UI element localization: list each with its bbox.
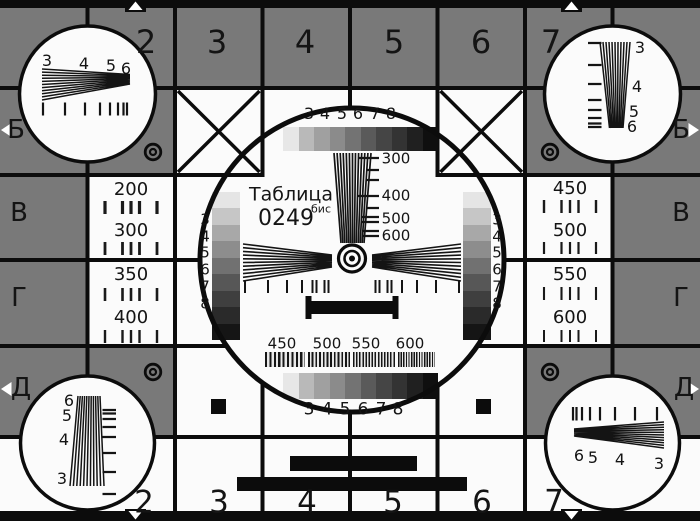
- gray-step-label: 5: [340, 402, 351, 419]
- grayscale-step: [212, 324, 240, 340]
- grayscale-step: [212, 208, 240, 224]
- grayscale-step: [423, 127, 439, 151]
- freq-label: 400: [382, 189, 411, 204]
- center-circle-outline-layer: [0, 0, 700, 521]
- wedge-number: 3: [635, 40, 645, 56]
- x-cell-right: [438, 88, 526, 175]
- grayscale-step: [330, 373, 346, 399]
- grayscale-step: [463, 324, 491, 340]
- freq-bar-label: 550: [352, 337, 381, 352]
- gray-step-label: 7: [370, 106, 380, 122]
- wedge-number: 4: [59, 432, 69, 448]
- sync-markers: [1, 0, 699, 521]
- black-square-left: [211, 399, 226, 414]
- ladder-label-right: 3: [492, 213, 502, 228]
- bottom-bar-long: [237, 477, 467, 491]
- ladder-label-left: 7: [200, 280, 210, 295]
- freq-tick-scale: [358, 158, 379, 236]
- grayscale-step: [345, 127, 361, 151]
- grayscale-step: [299, 373, 315, 399]
- bottom-sync-strip: [0, 511, 700, 521]
- bottom-bar-short: [290, 456, 417, 471]
- grayscale-step: [463, 307, 491, 323]
- side-cell-label: 450: [553, 180, 587, 198]
- wedge-number: 6: [121, 61, 131, 77]
- col-label-top: 2: [136, 26, 156, 58]
- triangle-up-icon: [565, 2, 579, 11]
- gray-step-label: 5: [337, 106, 347, 122]
- col-label-top: 7: [541, 26, 561, 58]
- grayscale-ladder-right: [463, 192, 491, 340]
- resolution-wedge-top-right: [600, 42, 630, 128]
- grayscale-step: [423, 373, 439, 399]
- col-label-top: 5: [384, 26, 404, 58]
- row-label-right: В: [672, 200, 690, 226]
- grayscale-step: [212, 225, 240, 241]
- ladder-label-left: 8: [200, 297, 210, 312]
- col-label-top: 3: [207, 26, 227, 58]
- side-cell-label: 500: [553, 222, 587, 240]
- freq-bar-label: 450: [268, 337, 297, 352]
- triangle-down-icon: [565, 511, 579, 520]
- grayscale-step: [463, 274, 491, 290]
- ladder-label-left: 5: [200, 246, 210, 261]
- grayscale-step: [212, 241, 240, 257]
- grayscale-bar-top: [283, 127, 438, 151]
- ladder-label-right: 4: [492, 230, 502, 245]
- ladder-label-right: 6: [492, 263, 502, 278]
- wedge-number: 4: [632, 79, 642, 95]
- side-cell-label: 200: [114, 181, 148, 199]
- row-label-right: Г: [673, 285, 689, 311]
- col-label-top: 4: [295, 26, 315, 58]
- gray-step-label: 7: [376, 402, 387, 419]
- tick-scale-top-left: [43, 103, 127, 116]
- row-label-right: Б: [672, 117, 690, 143]
- grid-lines: [0, 8, 700, 511]
- freq-burst-450: [265, 352, 305, 367]
- resolution-wedge-bottom-right: [574, 422, 664, 448]
- triangle-right-icon: [689, 123, 700, 137]
- gray-step-label: 4: [322, 402, 333, 419]
- grayscale-step: [314, 373, 330, 399]
- row-label-left: Г: [11, 285, 27, 311]
- triangle-up-icon: [129, 2, 143, 11]
- corner-circle-top-right: [545, 26, 681, 162]
- grayscale-step: [392, 127, 408, 151]
- gray-step-label: 3: [304, 402, 315, 419]
- target-icon: [145, 364, 161, 380]
- top-sync-strip: [0, 0, 700, 8]
- wedge-number: 3: [57, 471, 67, 487]
- grayscale-step: [283, 373, 299, 399]
- ladder-label-left: 4: [200, 230, 210, 245]
- side-cell-label: 300: [114, 222, 148, 240]
- ladder-label-right: 8: [492, 297, 502, 312]
- corner-circle-bottom-right: [546, 376, 680, 510]
- freq-label: 500: [382, 212, 411, 227]
- diagonal-cross-icon: [441, 91, 523, 172]
- freq-bar-label: 600: [396, 337, 425, 352]
- freq-bar-label: 500: [313, 337, 342, 352]
- col-label-bottom: 2: [134, 488, 154, 519]
- col-label-bottom: 6: [472, 488, 492, 519]
- col-label-top: 6: [471, 26, 491, 58]
- diagonal-cross-icon: [178, 91, 260, 172]
- center-circle-outline: [200, 108, 504, 412]
- gray-step-label: 8: [393, 402, 404, 419]
- grayscale-step: [463, 192, 491, 208]
- ladder-label-right: 7: [492, 280, 502, 295]
- grayscale-step: [314, 127, 330, 151]
- wedge-number: 6: [574, 448, 584, 464]
- gray-step-label: 8: [386, 106, 396, 122]
- grayscale-step: [361, 373, 377, 399]
- grayscale-step: [212, 307, 240, 323]
- x-cell-left: [175, 88, 263, 175]
- side-cell-label: 600: [553, 309, 587, 327]
- row-label-left: В: [10, 200, 28, 226]
- ladder-label-right: 5: [492, 246, 502, 261]
- wedge-number: 4: [79, 56, 89, 72]
- grayscale-step: [212, 258, 240, 274]
- grayscale-step: [463, 241, 491, 257]
- center-right-ticks: [376, 280, 460, 293]
- col-label-bottom: 3: [209, 488, 229, 519]
- side-cell-label: 350: [114, 266, 148, 284]
- grayscale-step: [463, 291, 491, 307]
- col-label-bottom: 4: [297, 488, 317, 519]
- wedge-number: 3: [654, 456, 664, 472]
- grayscale-step: [392, 373, 408, 399]
- grayscale-step: [407, 373, 423, 399]
- gray-step-label: 6: [353, 106, 363, 122]
- target-icon: [145, 144, 161, 160]
- grayscale-step: [463, 208, 491, 224]
- center-left-fan: [243, 244, 332, 281]
- resolution-wedge-top-left: [42, 69, 130, 100]
- grayscale-ladder-left: [212, 192, 240, 340]
- card-code: 0249: [258, 208, 314, 230]
- row-label-left: Б: [7, 117, 25, 143]
- freq-label: 300: [382, 152, 411, 167]
- wedge-number: 5: [588, 450, 598, 466]
- grayscale-step: [212, 274, 240, 290]
- grayscale-step: [330, 127, 346, 151]
- bullseye-icon: [339, 245, 366, 272]
- card-code-suffix: бис: [311, 204, 331, 215]
- grayscale-step: [376, 373, 392, 399]
- wedge-number: 3: [42, 53, 52, 69]
- wedge-number: 5: [62, 408, 72, 424]
- grayscale-step: [212, 291, 240, 307]
- black-square-right: [476, 399, 491, 414]
- side-cell-label: 400: [114, 309, 148, 327]
- freq-burst-600: [398, 352, 435, 367]
- grayscale-step: [463, 225, 491, 241]
- wedge-number: 6: [627, 119, 637, 135]
- grayscale-step: [361, 127, 377, 151]
- center-circle-fill: [200, 108, 504, 412]
- grayscale-step: [407, 127, 423, 151]
- center-vertical-wedge: [334, 153, 371, 243]
- grayscale-step: [299, 127, 315, 151]
- freq-label: 600: [382, 229, 411, 244]
- center-left-ticks: [245, 280, 329, 293]
- col-label-bottom: 5: [383, 488, 403, 519]
- ibeam-bar: [306, 296, 399, 319]
- gray-step-label: 4: [320, 106, 330, 122]
- ladder-label-left: 6: [200, 263, 210, 278]
- target-icon: [542, 144, 558, 160]
- grayscale-step: [376, 127, 392, 151]
- grayscale-step: [283, 127, 299, 151]
- test-card: 2 3 4 5 6 7 2 3 4 5 6 7 Б В Г Д Б В Г Д …: [0, 0, 700, 521]
- test-card-graphics: [0, 0, 700, 521]
- grayscale-bar-bottom: [283, 373, 438, 399]
- ladder-label-left: 3: [200, 213, 210, 228]
- freq-burst-550: [353, 352, 395, 367]
- wedge-number: 5: [106, 58, 116, 74]
- tick-scale-top-right: [588, 43, 602, 127]
- freq-burst-500: [308, 352, 350, 367]
- row-label-right: Д: [674, 375, 694, 401]
- center-right-fan: [372, 244, 461, 281]
- gray-step-label: 6: [358, 402, 369, 419]
- col-label-bottom: 7: [544, 487, 564, 518]
- tick-scale-bottom-right: [573, 407, 657, 421]
- gray-step-label: 3: [304, 106, 314, 122]
- resolution-wedge-bottom-left: [70, 396, 104, 486]
- tick-scale-bottom-left: [103, 410, 117, 494]
- grayscale-step: [345, 373, 361, 399]
- grayscale-step: [463, 258, 491, 274]
- target-icon: [542, 364, 558, 380]
- side-cell-label: 550: [553, 266, 587, 284]
- wedge-number: 4: [615, 452, 625, 468]
- row-label-left: Д: [11, 375, 31, 401]
- grayscale-step: [212, 192, 240, 208]
